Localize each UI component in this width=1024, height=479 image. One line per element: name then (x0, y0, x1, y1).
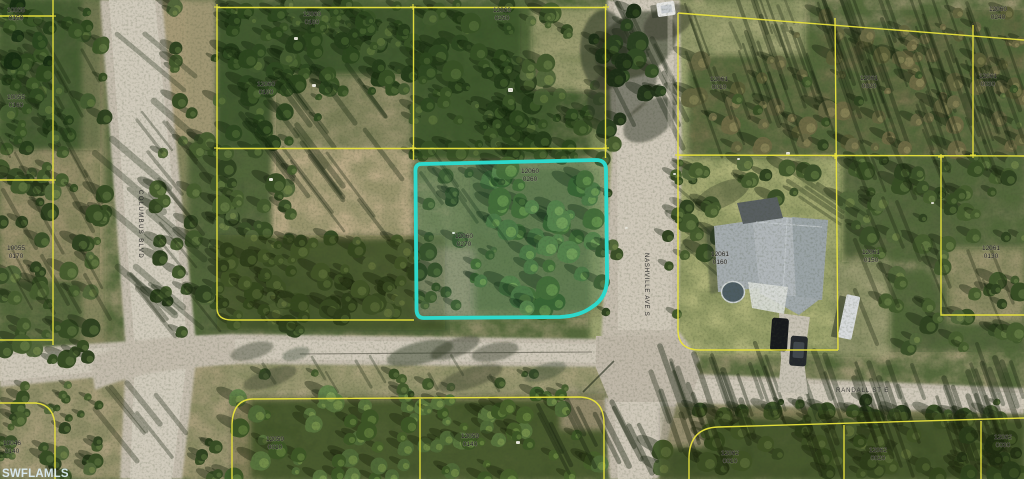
svg-text:NASHVILLE AVE S: NASHVILLE AVE S (643, 253, 649, 317)
svg-text:120610030: 120610030 (979, 73, 997, 88)
svg-text:120610150: 120610150 (862, 249, 880, 264)
svg-text:100550160: 100550160 (7, 94, 25, 109)
svg-text:100550170: 100550170 (7, 245, 25, 260)
svg-text:SWFLAMLS: SWFLAMLS (2, 468, 69, 479)
svg-text:120600240: 120600240 (989, 6, 1007, 21)
svg-text:COLUMBUS BLVD: COLUMBUS BLVD (137, 190, 143, 259)
svg-text:120600190: 120600190 (257, 81, 275, 96)
svg-text:120600180: 120600180 (303, 11, 321, 26)
svg-text:120590010: 120590010 (266, 436, 284, 451)
svg-text:120610130: 120610130 (982, 245, 1000, 260)
svg-text:120620020: 120620020 (869, 447, 887, 462)
svg-text:120620030: 120620030 (994, 434, 1012, 449)
svg-text:120590140: 120590140 (461, 433, 479, 448)
svg-text:120600260: 120600260 (521, 168, 539, 183)
svg-text:120600250: 120600250 (493, 7, 511, 22)
svg-text:120610160: 120610160 (711, 251, 729, 266)
svg-text:120610010: 120610010 (710, 76, 728, 91)
svg-text:120600270: 120600270 (455, 233, 473, 248)
svg-text:100550150: 100550150 (7, 7, 25, 22)
svg-text:RANDALL ST E: RANDALL ST E (836, 388, 889, 394)
svg-text:100460140: 100460140 (3, 440, 21, 455)
svg-text:120620010: 120620010 (721, 450, 739, 465)
svg-text:120610020: 120610020 (860, 75, 878, 90)
